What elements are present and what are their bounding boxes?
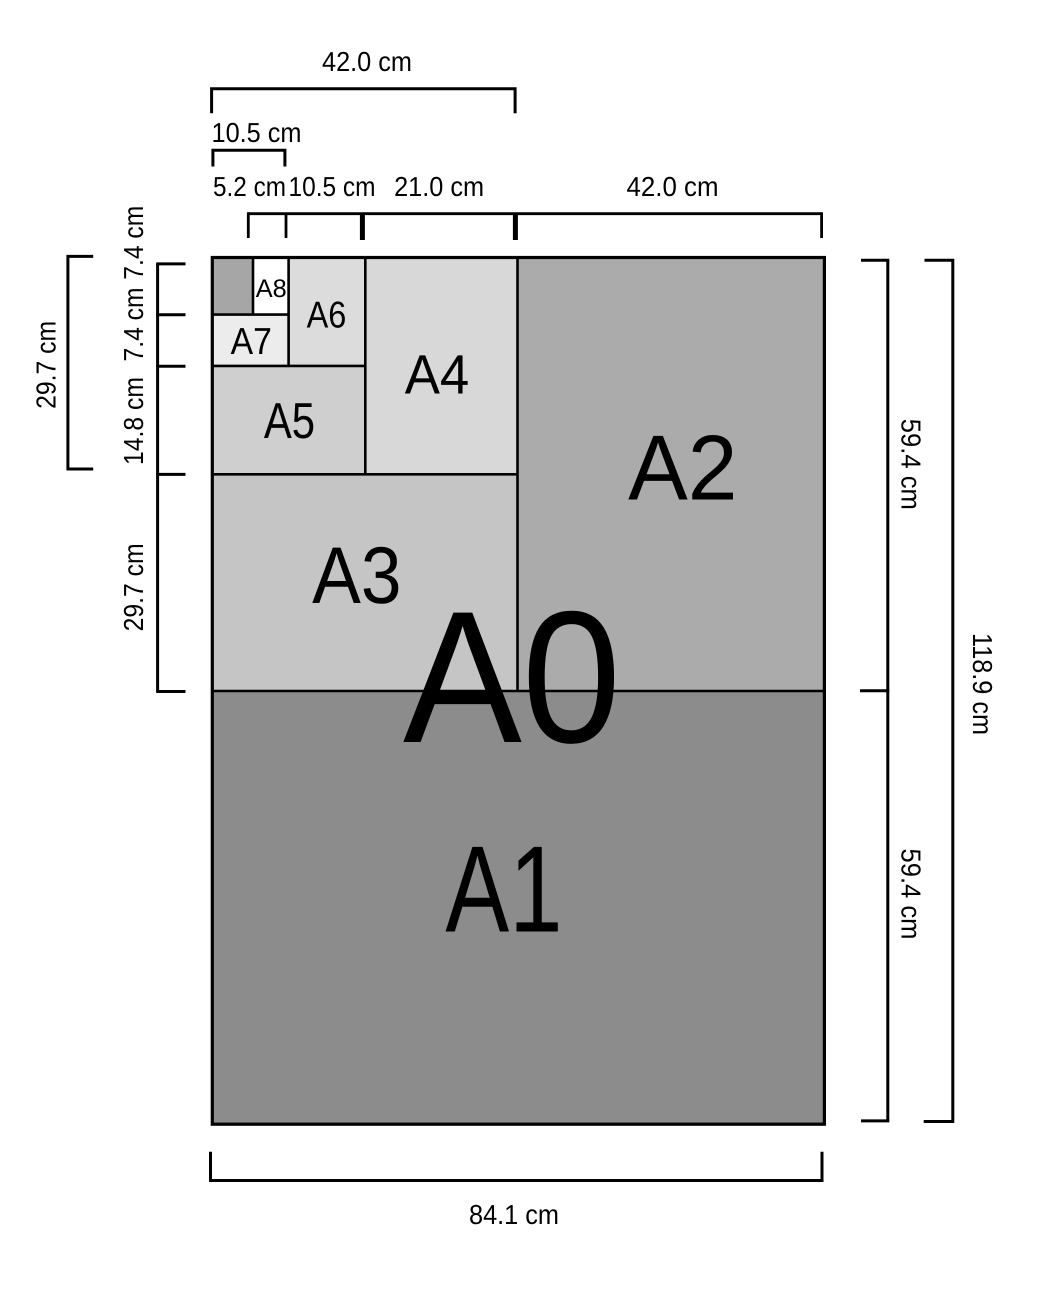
svg-text:59.4 cm: 59.4 cm — [896, 849, 927, 940]
svg-text:A0: A0 — [403, 572, 621, 782]
svg-text:7.4 cm: 7.4 cm — [118, 206, 149, 280]
svg-text:A2: A2 — [628, 415, 737, 519]
svg-text:10.5 cm: 10.5 cm — [212, 117, 302, 148]
svg-text:84.1 cm: 84.1 cm — [469, 1199, 559, 1230]
svg-text:29.7 cm: 29.7 cm — [31, 321, 62, 409]
svg-text:7.4 cm: 7.4 cm — [118, 288, 149, 362]
svg-text:42.0 cm: 42.0 cm — [322, 46, 412, 77]
svg-text:5.2 cm: 5.2 cm — [213, 171, 286, 202]
svg-text:A5: A5 — [264, 392, 315, 449]
svg-text:14.8 cm: 14.8 cm — [118, 377, 149, 465]
svg-text:A8: A8 — [256, 275, 287, 303]
svg-text:A4: A4 — [405, 344, 470, 406]
svg-text:118.9 cm: 118.9 cm — [967, 633, 998, 735]
svg-text:A3: A3 — [312, 531, 401, 621]
svg-text:A6: A6 — [307, 293, 347, 335]
svg-text:21.0 cm: 21.0 cm — [394, 171, 484, 202]
svg-text:29.7 cm: 29.7 cm — [118, 543, 149, 631]
svg-text:59.4 cm: 59.4 cm — [896, 419, 927, 510]
svg-text:10.5 cm: 10.5 cm — [289, 171, 376, 202]
svg-text:42.0 cm: 42.0 cm — [627, 171, 719, 202]
svg-text:A1: A1 — [445, 822, 562, 959]
svg-text:A7: A7 — [231, 320, 272, 362]
